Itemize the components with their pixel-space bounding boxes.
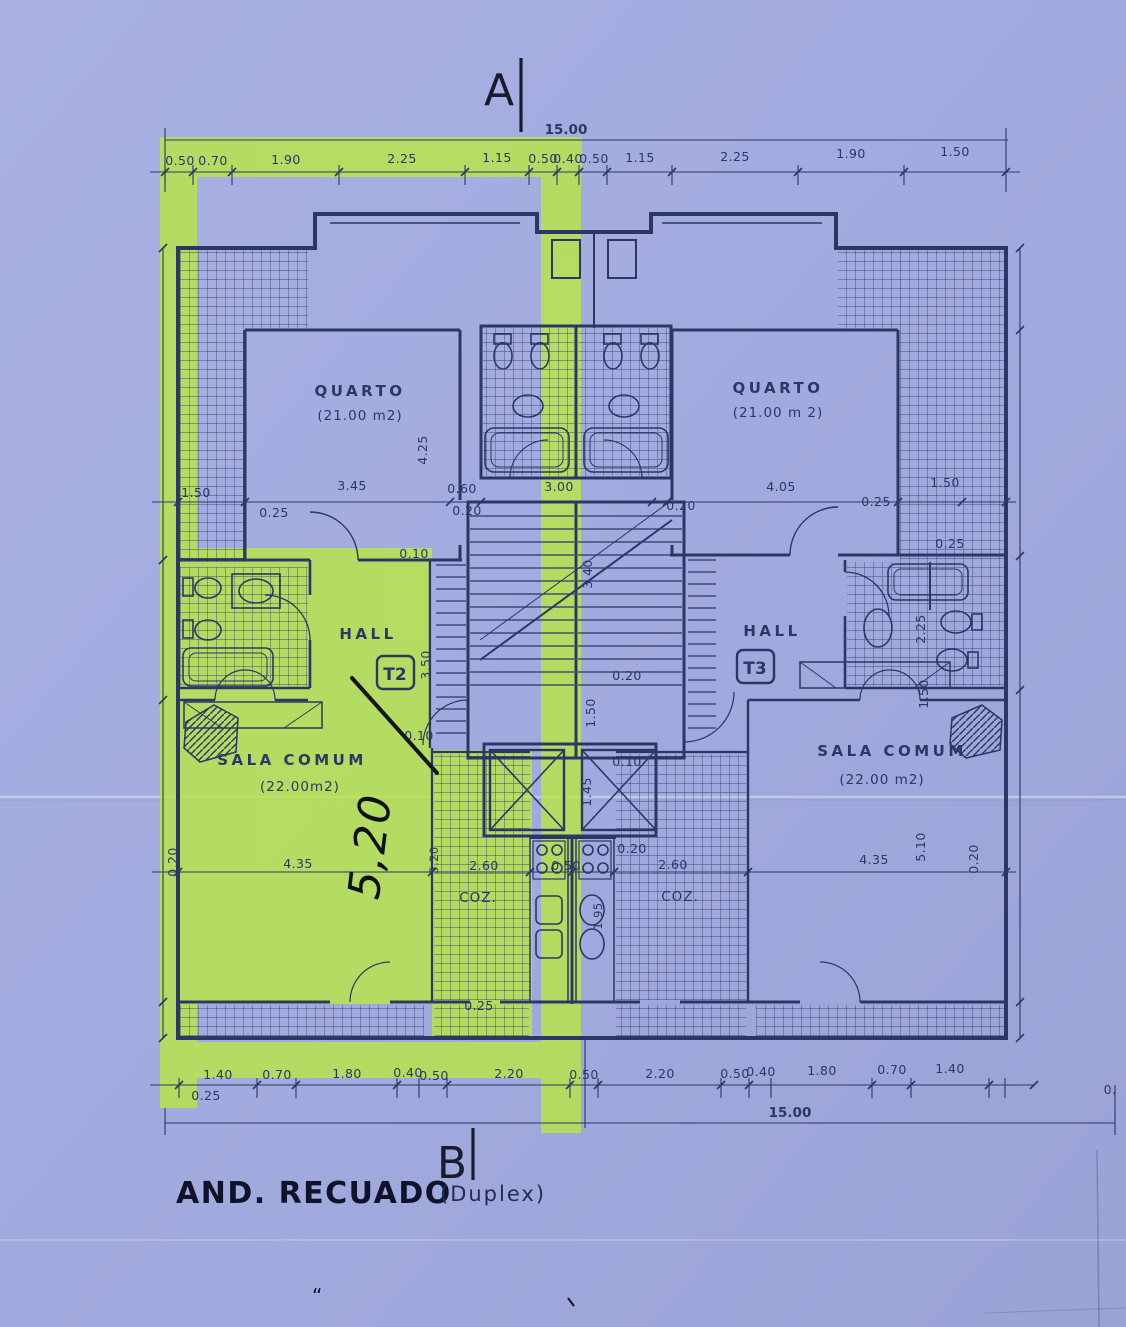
svg-text:4.25: 4.25 (415, 435, 430, 464)
svg-text:0.50: 0.50 (419, 1068, 448, 1083)
svg-text:1.15: 1.15 (625, 150, 654, 165)
svg-text:0.70: 0.70 (877, 1062, 906, 1077)
svg-text:0.10: 0.10 (399, 546, 428, 561)
room-sala-right: SALA COMUM (817, 742, 967, 760)
svg-text:0.20: 0.20 (612, 668, 641, 683)
svg-text:3.00: 3.00 (544, 479, 573, 494)
svg-text:1.50: 1.50 (583, 698, 598, 727)
drawing-title: AND. RECUADO (176, 1176, 452, 1211)
svg-text:1.80: 1.80 (807, 1063, 836, 1078)
stray-mark: “ (312, 1284, 322, 1308)
svg-text:1.50: 1.50 (940, 144, 969, 159)
svg-text:0.70: 0.70 (198, 153, 227, 168)
svg-text:1.50: 1.50 (916, 679, 931, 708)
svg-text:2.25: 2.25 (913, 614, 928, 643)
svg-text:4.35: 4.35 (283, 856, 312, 871)
overall-dim-top: 15.00 (545, 122, 588, 138)
svg-text:(21.00 m2): (21.00 m2) (317, 408, 402, 424)
svg-text:0.20: 0.20 (617, 841, 646, 856)
svg-text:4.35: 4.35 (859, 852, 888, 867)
svg-text:(21.00 m 2): (21.00 m 2) (733, 405, 824, 421)
svg-text:0.20: 0.20 (666, 498, 695, 513)
room-kitchen-left: COZ. (459, 890, 497, 906)
unit-tag-t3: T3 (743, 659, 766, 679)
svg-text:0.25: 0.25 (861, 494, 890, 509)
room-quarto-right: QUARTO (733, 379, 824, 397)
svg-text:(22.00 m2): (22.00 m2) (839, 772, 924, 788)
drawing-subtitle: (Duplex) (440, 1182, 546, 1206)
room-sala-left: SALA COMUM (217, 751, 367, 769)
svg-text:1.90: 1.90 (836, 146, 865, 161)
svg-text:0.: 0. (1104, 1082, 1117, 1097)
room-hall-right: HALL (743, 622, 800, 640)
svg-text:5.10: 5.10 (913, 832, 928, 861)
room-quarto-left: QUARTO (315, 382, 406, 400)
svg-text:2.60: 2.60 (469, 858, 498, 873)
overall-dim-bottom: 15.00 (769, 1105, 812, 1121)
svg-text:2.60: 2.60 (658, 857, 687, 872)
svg-text:0.40: 0.40 (746, 1064, 775, 1079)
svg-text:1.80: 1.80 (332, 1066, 361, 1081)
svg-text:0.50: 0.50 (165, 153, 194, 168)
room-kitchen-right: COZ. (661, 889, 699, 905)
svg-text:(22.00m2): (22.00m2) (260, 779, 340, 795)
room-hall-left: HALL (339, 625, 396, 643)
svg-text:3.45: 3.45 (337, 478, 366, 493)
svg-text:0.50: 0.50 (579, 151, 608, 166)
svg-text:0.70: 0.70 (262, 1067, 291, 1082)
svg-text:0.25: 0.25 (191, 1088, 220, 1103)
svg-text:0.50: 0.50 (569, 1067, 598, 1082)
svg-text:0.50: 0.50 (551, 858, 580, 873)
svg-text:2.25: 2.25 (720, 149, 749, 164)
svg-text:5.20: 5.20 (427, 846, 441, 873)
svg-text:1.50: 1.50 (930, 475, 959, 490)
svg-text:2.25: 2.25 (387, 151, 416, 166)
svg-text:0.25: 0.25 (259, 505, 288, 520)
svg-text:1.50: 1.50 (181, 485, 210, 500)
svg-text:0.20: 0.20 (165, 847, 180, 876)
svg-text:1.45: 1.45 (579, 777, 594, 806)
svg-text:0.20: 0.20 (452, 503, 481, 518)
svg-text:2.20: 2.20 (645, 1066, 674, 1081)
svg-text:1.90: 1.90 (271, 152, 300, 167)
svg-text:1.40: 1.40 (935, 1061, 964, 1076)
svg-text:1.95: 1.95 (591, 902, 605, 929)
floor-plan-drawing: 15.00 15.00 0.50 0.70 1.90 2.25 1.15 0.5… (0, 0, 1126, 1327)
title-block: AND. RECUADO (Duplex) (176, 1176, 546, 1211)
scanned-floor-plan-page: 15.00 15.00 0.50 0.70 1.90 2.25 1.15 0.5… (0, 0, 1126, 1327)
svg-text:0.20: 0.20 (966, 844, 981, 873)
svg-text:1.40: 1.40 (203, 1067, 232, 1082)
svg-text:1.15: 1.15 (482, 150, 511, 165)
svg-text:0.25: 0.25 (935, 536, 964, 551)
svg-text:0.10: 0.10 (612, 754, 641, 769)
svg-text:4.05: 4.05 (766, 479, 795, 494)
svg-text:0.60: 0.60 (447, 481, 476, 496)
svg-text:0.25: 0.25 (464, 998, 493, 1013)
svg-text:2.20: 2.20 (494, 1066, 523, 1081)
unit-tag-t2: T2 (383, 665, 406, 685)
svg-text:3.50: 3.50 (418, 650, 433, 679)
svg-text:3.40: 3.40 (580, 559, 595, 588)
section-marker-a: A (484, 65, 514, 116)
